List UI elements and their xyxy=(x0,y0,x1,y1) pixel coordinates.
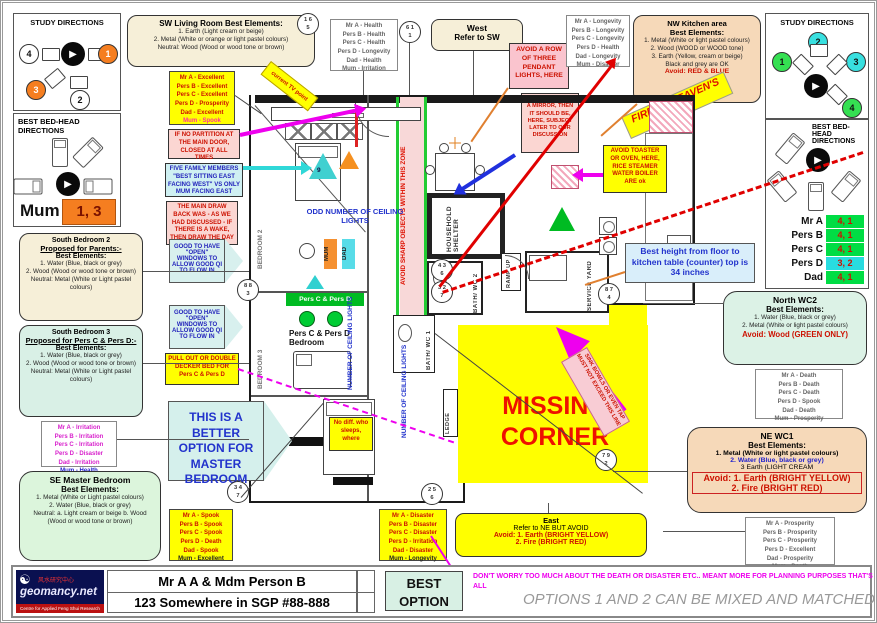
circle-bottom: 1 xyxy=(400,33,420,41)
chair-icon xyxy=(425,165,435,175)
prosperity-list: Mr A - ProsperityPers B - ProsperityPers… xyxy=(745,517,835,565)
east-box: East Refer to NE BUT AVOID Avoid: 1. Ear… xyxy=(455,513,647,557)
nw-lines: 1. Metal (White or light pastel colours)… xyxy=(638,37,756,68)
magenta-arrow-head xyxy=(572,168,583,182)
desk-icon xyxy=(826,54,848,76)
stool-icon xyxy=(299,243,315,259)
direction-2-circle: 2 xyxy=(70,90,90,110)
list-line: Mr A - Excellent xyxy=(171,74,233,83)
options-note: OPTIONS 1 AND 2 CAN BE MIXED AND MATCHED xyxy=(483,591,875,608)
bedhead-row: Dad4, 1 xyxy=(768,270,864,284)
list-line: Mum - Irritation xyxy=(332,65,396,74)
sb3-heading: Best Elements: xyxy=(24,345,138,352)
compass-icon: ▶ xyxy=(804,74,828,98)
ceiling-light-dot xyxy=(327,311,343,327)
list-line: Pers C - Irritation xyxy=(43,441,115,450)
circle-top: 8 8 xyxy=(238,283,258,291)
chair-icon xyxy=(439,143,449,153)
circle-top: 8 7 xyxy=(599,287,619,295)
list-line: Mum - Prosperity xyxy=(757,415,841,424)
list-line: Pers C - Disaster xyxy=(381,529,445,538)
sb2-heading: Best Elements: xyxy=(24,253,138,260)
sw-living-box: SW Living Room Best Elements: 1. Earth (… xyxy=(127,15,315,67)
dad-bed-label: DAD xyxy=(342,239,355,269)
list-line: Neutral: Metal (White or Light pastel co… xyxy=(24,276,138,292)
west-title: West xyxy=(436,23,518,33)
wardrobe-unit xyxy=(337,123,363,140)
right-bedhead-title: BEST BED-HEAD DIRECTIONS xyxy=(812,124,862,145)
list-line: Pers D - Spook xyxy=(757,398,841,407)
direction-3-circle: 3 xyxy=(846,52,866,72)
sw-lines: 1. Earth (Light cream or beige)2. Metal … xyxy=(132,28,310,52)
bed-pillow xyxy=(810,184,822,192)
list-line: 1. Water (Blue, black or grey) xyxy=(24,352,138,360)
list-line: Pers C - Health xyxy=(332,39,396,48)
bath-wc1-label: BATH/ WC 1 xyxy=(426,318,432,370)
geomancy-logo: ☯ 风水研究中心 geomancy.net Centre for Applied… xyxy=(16,570,104,613)
nw-heading: Best Elements: xyxy=(638,28,756,37)
num-lights-vertical-1: NUMBER OF CEILING LIGHTS xyxy=(347,285,363,401)
nwc2-heading: Best Elements: xyxy=(728,305,862,314)
bed-icon xyxy=(14,179,43,195)
triangle-9-label: 9 xyxy=(317,167,321,174)
connector-line xyxy=(663,531,745,532)
newc1-line2: 2. Water (Blue, black or grey) xyxy=(692,457,862,464)
list-line: Mr A - Irritation xyxy=(43,424,115,433)
circle-bottom: 4 xyxy=(599,295,619,303)
sector-circle-165: 1 65 xyxy=(297,13,319,35)
bedhead-row: Pers C4, 1 xyxy=(768,242,864,256)
south-bedroom2-box: South Bedroom 2 Proposed for Parents:- B… xyxy=(19,233,143,321)
list-line: Pers B - Excellent xyxy=(171,83,233,92)
tv-console-wall xyxy=(255,95,693,103)
bedroom2-label: BEDROOM 2 xyxy=(257,191,264,269)
list-line: 2. Water (Blue, black or grey) xyxy=(24,502,156,510)
longevity-list: Mr A - LongevityPers B - LongevityPers C… xyxy=(566,15,630,67)
list-line: Pers D - Prosperity xyxy=(171,100,233,109)
title-block: Mr A A & Mdm Person B 123 Somewhere in S… xyxy=(107,570,357,613)
person-name: Dad xyxy=(804,272,823,283)
list-line: Mr A - Health xyxy=(332,22,396,31)
sector-circle-611: 6 11 xyxy=(399,21,421,43)
cyan-triangle-9 xyxy=(309,153,337,179)
connector-line xyxy=(143,271,249,272)
better-option-note: THIS IS A BETTER OPTION FOR MASTER BEDRO… xyxy=(168,401,264,481)
list-line: Pers B - Spook xyxy=(171,521,231,530)
cyan-arrow-line xyxy=(243,166,305,170)
bed-pillow xyxy=(296,354,312,366)
list-line: Pers C - Excellent xyxy=(171,91,233,100)
right-study-panel: STUDY DIRECTIONS 2 1 3 ▶ 4 xyxy=(765,13,869,119)
cyan-arrow-head xyxy=(301,161,312,175)
sector-circle-883: 8 83 xyxy=(237,279,259,301)
circle-bottom: 7 xyxy=(432,293,452,301)
death-list: Mr A - DeathPers B - DeathPers C - Death… xyxy=(755,369,843,419)
newc1-heading: Best Elements: xyxy=(692,441,862,450)
bath-wc2-label: BATH/ WC 2 xyxy=(473,265,479,313)
desk-icon xyxy=(42,48,60,61)
sector-circle-874: 8 74 xyxy=(598,283,620,305)
list-line: 3. Earth (Yellow, cream or beige) xyxy=(638,53,756,61)
mum-bed-label: MUM xyxy=(324,239,337,269)
list-line: Black and grey are OK xyxy=(638,61,756,69)
se-lines: 1. Metal (White or Light pastel colours)… xyxy=(24,494,156,525)
bed-pillow xyxy=(87,139,101,153)
list-line: Neutral: a. Light cream or beige b. Wood… xyxy=(24,510,156,526)
pendant-light-icon xyxy=(449,137,461,149)
list-line: 1. Metal (White or light pastel colours) xyxy=(638,37,756,45)
se-title: SE Master Bedroom xyxy=(24,475,156,485)
mum-directions-badge: 1, 3 xyxy=(62,199,116,225)
bed-icon xyxy=(831,170,862,202)
newc1-title: NE WC1 xyxy=(692,431,862,441)
mum-label: Mum xyxy=(20,201,60,221)
arrow-head-right xyxy=(225,305,243,349)
chair-icon xyxy=(461,143,471,153)
disaster-list: Mr A - DisasterPers B - DisasterPers C -… xyxy=(379,509,447,561)
person-name: Mr A xyxy=(801,216,823,227)
connector-line xyxy=(143,363,249,364)
west-line: Refer to SW xyxy=(436,33,518,42)
counter-height-note: Best height from floor to kitchen table … xyxy=(625,243,755,283)
list-line: Pers D - Health xyxy=(568,44,628,53)
nw-avoid: Avoid: RED & BLUE xyxy=(638,68,756,75)
list-line: 2. Metal (White or orange or light paste… xyxy=(132,36,310,44)
connector-line xyxy=(117,439,249,440)
spook-list: Mr A - SpookPers B - SpookPers C - Spook… xyxy=(169,509,233,561)
circle-top: 2 5 xyxy=(422,487,442,495)
list-line: Dad - Excellent xyxy=(171,109,233,118)
list-line: Pers B - Death xyxy=(757,381,841,390)
nw-title: NW Kitchen area xyxy=(638,19,756,28)
desk-icon xyxy=(70,76,88,89)
client-address: 123 Somewhere in SGP #88-888 xyxy=(108,593,356,613)
list-line: Dad - Spook xyxy=(171,547,231,556)
list-line: Pers D - Longevity xyxy=(332,48,396,57)
best-option-badge: BEST OPTION xyxy=(385,571,463,611)
newc1-avoid2: 2. Fire (BRIGHT RED) xyxy=(695,483,859,493)
nwc2-lines: 1. Water (Blue, black or grey)2. Metal (… xyxy=(728,314,862,330)
list-line: Mr A - Prosperity xyxy=(747,520,833,529)
list-line: 2. Metal (White or light pastel colours) xyxy=(728,322,862,330)
list-line: Mr A - Disaster xyxy=(381,512,445,521)
bedhead-row: Pers B4, 1 xyxy=(768,228,864,242)
sb3-title: South Bedroom 3 xyxy=(24,329,138,336)
se-heading: Best Elements: xyxy=(24,485,156,494)
sb2-subtitle: Proposed for Parents:- xyxy=(24,244,138,253)
circle-top: 6 1 xyxy=(400,25,420,33)
list-line: Dad - Prosperity xyxy=(747,555,833,564)
magenta-toaster-arrow xyxy=(579,173,603,177)
desk-icon xyxy=(810,44,828,57)
direction-1-circle: 1 xyxy=(772,52,792,72)
compass-icon: ▶ xyxy=(61,42,85,66)
sink-bowl xyxy=(603,221,615,233)
client-name: Mr A A & Mdm Person B xyxy=(108,571,356,593)
connector-line xyxy=(548,503,549,513)
list-line: Pers C - Death xyxy=(757,389,841,398)
desk-icon xyxy=(44,68,66,90)
newc1-line3: 3 Earth (LIGHT CREAM xyxy=(692,464,862,471)
list-line: Pers C - Longevity xyxy=(568,35,628,44)
right-study-title: STUDY DIRECTIONS xyxy=(766,18,868,27)
bedhead-row: Pers D3, 2 xyxy=(768,256,864,270)
sw-title: SW Living Room Best Elements: xyxy=(132,19,310,28)
person-name: Pers C xyxy=(791,244,823,255)
newc1-line1: 1. Metal (White or light pastel colours) xyxy=(692,450,862,457)
list-line: Neutral: Metal (White or Light pastel co… xyxy=(24,368,138,384)
list-line: 1. Earth (Light cream or beige) xyxy=(132,28,310,36)
direction-badge: 4, 1 xyxy=(826,271,864,284)
no-partition-note: IF NO PARTITION AT THE MAIN DOOR, CLOSED… xyxy=(168,129,240,159)
orange-triangle xyxy=(339,151,359,169)
list-line: Pers D - Excellent xyxy=(747,546,833,555)
no-diff-note: No diff. who sleeps, where xyxy=(329,417,373,451)
bed-pillow xyxy=(86,181,94,193)
person-name: Pers B xyxy=(791,230,823,241)
connector-line xyxy=(643,303,723,304)
list-line: Pers B - Health xyxy=(332,31,396,40)
east-avoid2: 2. Fire (BRIGHT RED) xyxy=(458,539,644,546)
bed-pillow xyxy=(33,181,41,193)
bedhead-table: Mr A4, 1Pers B4, 1Pers C4, 1Pers D3, 2Da… xyxy=(768,214,864,284)
east-title: East xyxy=(458,516,644,525)
right-bedhead-panel: BEST BED-HEAD DIRECTIONS ▶ Mr A4, 1Pers … xyxy=(765,119,869,289)
irritation-list: Mr A - IrritationPers B - IrritationPers… xyxy=(41,421,117,467)
sb2-title: South Bedroom 2 xyxy=(24,237,138,244)
sb2-lines: 1. Water (Blue, black or grey)2. Wood (W… xyxy=(24,260,138,291)
east-avoid1: Avoid: 1. Earth (BRIGHT YELLOW) xyxy=(458,532,644,539)
stove-hatch xyxy=(649,101,693,133)
bed-icon xyxy=(775,132,806,164)
bed-icon xyxy=(52,138,68,167)
list-line: 1. Water (Blue, black or grey) xyxy=(728,314,862,322)
direction-badge: 3, 2 xyxy=(826,257,864,270)
list-line: Pers B - Prosperity xyxy=(747,529,833,538)
list-line: 1. Water (Blue, black or grey) xyxy=(24,260,138,268)
direction-badge: 4, 1 xyxy=(826,243,864,256)
ceiling-light-dot xyxy=(299,311,315,327)
direction-3-circle: 3 xyxy=(26,80,46,100)
pers-cd-bed xyxy=(293,351,351,389)
ne-wc1-box: NE WC1 Best Elements: 1. Metal (White or… xyxy=(687,427,867,513)
bed-icon xyxy=(808,182,824,211)
circle-top: 4 3 xyxy=(432,263,452,271)
list-line: Dad - Disaster xyxy=(381,547,445,556)
list-line: Dad - Irritation xyxy=(43,459,115,468)
list-line: Mum - Spook xyxy=(171,117,233,126)
ledge-strip: LEDGE xyxy=(443,389,458,437)
left-study-title: STUDY DIRECTIONS xyxy=(14,18,120,27)
list-line: 1. Metal (White or Light pastel colours) xyxy=(24,494,156,502)
newc1-avoid1: Avoid: 1. Earth (BRIGHT YELLOW) xyxy=(695,473,859,483)
bedhead-row: Mr A4, 1 xyxy=(768,214,864,228)
bed-pillow xyxy=(844,173,858,187)
logo-chinese-text: 风水研究中心 xyxy=(38,575,74,584)
household-shelter-label: HOUSEHOLD SHELTER xyxy=(446,200,460,252)
ledge-label: LEDGE xyxy=(445,392,451,434)
east-line: Refer to NE BUT AVOID xyxy=(458,525,644,532)
nwc2-avoid: Avoid: Wood (GREEN ONLY) xyxy=(728,330,862,339)
direction-badge: 4, 1 xyxy=(826,229,864,242)
nwc2-title: North WC2 xyxy=(728,295,862,305)
list-line: Mum - Excellent xyxy=(171,555,231,564)
bed-pillow xyxy=(788,135,802,149)
connector-line xyxy=(613,471,687,472)
arrow-head-right xyxy=(225,239,243,283)
direction-4-circle: 4 xyxy=(842,98,862,118)
bed-pillow xyxy=(54,140,66,148)
bed-pillow xyxy=(326,402,372,416)
open-windows-note-2: GOOD TO HAVE "OPEN" WINDOWS TO ALLOW GOO… xyxy=(169,305,225,349)
circle-bottom: 5 xyxy=(298,25,318,33)
sink-unit xyxy=(599,217,617,235)
list-line: Pers C - Prosperity xyxy=(747,537,833,546)
compass-icon: ▶ xyxy=(56,172,80,196)
list-line: Mr A - Spook xyxy=(171,512,231,521)
list-line: Pers B - Disaster xyxy=(381,521,445,530)
list-line: Mr A - Death xyxy=(757,372,841,381)
list-line: 2. Wood (Wood or wood tone or brown) xyxy=(24,268,138,276)
dont-worry-text: DON'T WORRY TOO MUCH ABOUT THE DEATH OR … xyxy=(473,572,873,592)
list-line: 2. Wood (Wood or wood tone or brown) xyxy=(24,360,138,368)
toaster-note: AVOID TOASTER OR OVEN, HERE, RICE STEAME… xyxy=(603,145,667,193)
list-line: Dad - Health xyxy=(332,57,396,66)
circle-bottom: 6 xyxy=(422,495,442,503)
logo-tagline: Centre for Applied Feng Shui Research xyxy=(16,604,104,613)
sector-circle-256: 2 56 xyxy=(421,483,443,505)
health-list: Mr A - HealthPers B - HealthPers C - Hea… xyxy=(330,19,398,71)
left-study-panel: STUDY DIRECTIONS 4 ▶ 1 3 2 xyxy=(13,13,121,111)
direction-badge: 4, 1 xyxy=(826,215,864,228)
list-line: Dad - Death xyxy=(757,407,841,416)
cyan-up-arrow xyxy=(306,275,324,289)
left-bedhead-title: BEST BED-HEAD DIRECTIONS xyxy=(18,117,120,135)
footer-bar: ☯ 风水研究中心 geomancy.net Centre for Applied… xyxy=(11,565,872,618)
title-block-empty-cell xyxy=(357,570,375,613)
list-line: Pers D - Disaster xyxy=(43,450,115,459)
connector-line xyxy=(409,43,410,95)
se-master-box: SE Master Bedroom Best Elements: 1. Meta… xyxy=(19,471,161,561)
left-bedhead-panel: BEST BED-HEAD DIRECTIONS ▶ Mum 1, 3 xyxy=(13,113,121,227)
odd-lights-label: ODD NUMBER OF CEILING LIGHTS xyxy=(303,207,407,226)
empty-cell xyxy=(358,571,374,593)
circle-top: 1 6 xyxy=(298,17,318,25)
pull-out-note: PULL OUT OR DOUBLE DECKER BED FOR Pers C… xyxy=(165,353,239,385)
list-line: Neutral: Wood (Wood or wood tone or brow… xyxy=(132,44,310,52)
bed-icon xyxy=(72,137,104,169)
missing-corner-area-top xyxy=(609,305,647,327)
direction-1-circle: 1 xyxy=(98,44,118,64)
direction-4-circle: 4 xyxy=(19,44,39,64)
list-line: Pers B - Irritation xyxy=(43,433,115,442)
north-wc2-box: North WC2 Best Elements: 1. Water (Blue,… xyxy=(723,291,867,365)
list-line: Pers D - Death xyxy=(171,538,231,547)
wardrobe-unit xyxy=(311,123,337,140)
connector-line xyxy=(363,71,364,95)
circle-bottom: 3 xyxy=(238,291,258,299)
current-tv-arrow: current TV point xyxy=(261,61,319,111)
list-line: Mr A - Longevity xyxy=(568,18,628,27)
wardrobe-black xyxy=(333,477,373,485)
excellent-list: Mr A - ExcellentPers B - ExcellentPers C… xyxy=(169,71,235,125)
person-name: Pers D xyxy=(791,258,823,269)
connector-line xyxy=(473,51,474,95)
green-triangle xyxy=(549,207,575,231)
bed-icon xyxy=(84,179,113,195)
list-line: Pers C - Spook xyxy=(171,529,231,538)
list-line: Pers B - Longevity xyxy=(568,27,628,36)
logo-domain: geomancy.net xyxy=(20,586,97,598)
newc1-avoid-box: Avoid: 1. Earth (BRIGHT YELLOW) 2. Fire … xyxy=(692,472,862,494)
consultation-diagram: STUDY DIRECTIONS 4 ▶ 1 3 2 BEST BED-HEAD… xyxy=(0,0,877,623)
five-family-note: FIVE FAMILY MEMBERS "BEST SITTING EAST F… xyxy=(165,163,243,197)
pendant-note: AVOID A ROW OF THREE PENDANT LIGHTS, HER… xyxy=(509,43,569,89)
south-bedroom3-box: South Bedroom 3 Proposed for Pers C & Pe… xyxy=(19,325,143,417)
list-line: 2. Wood (WOOD or WOOD tone) xyxy=(638,45,756,53)
sb3-subtitle: Proposed for Pers C & Pers D:- xyxy=(24,336,138,345)
open-windows-note-1: GOOD TO HAVE "OPEN" WINDOWS TO ALLOW GOO… xyxy=(169,239,225,283)
sb3-lines: 1. Water (Blue, black or grey)2. Wood (W… xyxy=(24,352,138,383)
sink-bowl xyxy=(603,241,615,253)
list-line: Mum - Longevity xyxy=(381,555,445,564)
